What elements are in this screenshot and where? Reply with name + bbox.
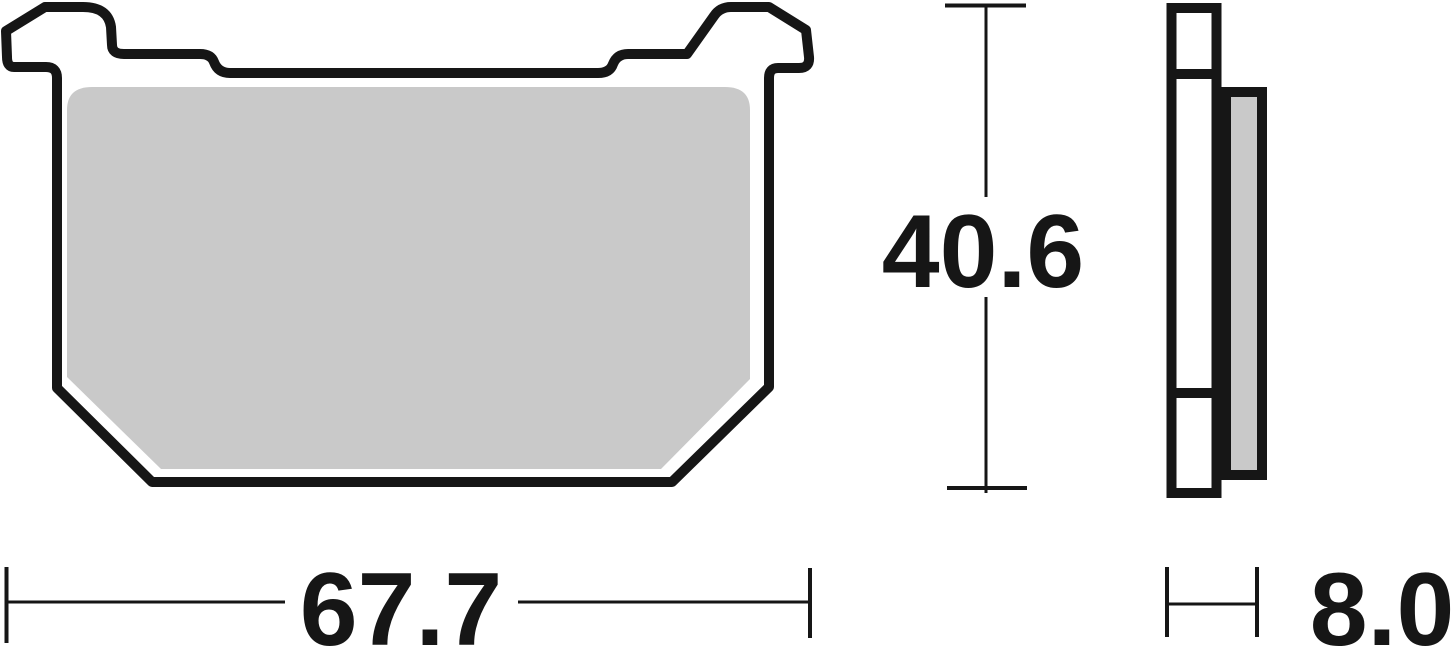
height-dimension-label: 40.6 xyxy=(882,194,1084,310)
height-dimension: 40.6 xyxy=(882,6,1084,494)
front-view xyxy=(6,7,809,482)
thickness-dimension: 8.0 xyxy=(1167,552,1454,646)
thickness-dimension-label: 8.0 xyxy=(1310,552,1454,646)
drawing-canvas: 40.6 67.7 8.0 xyxy=(0,0,1454,646)
side-view xyxy=(1167,8,1263,493)
brake-pad-technical-drawing: 40.6 67.7 8.0 xyxy=(0,0,1454,646)
width-dimension-label: 67.7 xyxy=(300,552,502,646)
side-view-friction-pad xyxy=(1226,92,1262,475)
width-dimension: 67.7 xyxy=(6,552,810,646)
front-view-friction-pad xyxy=(67,87,750,469)
side-view-backplate xyxy=(1172,8,1217,493)
